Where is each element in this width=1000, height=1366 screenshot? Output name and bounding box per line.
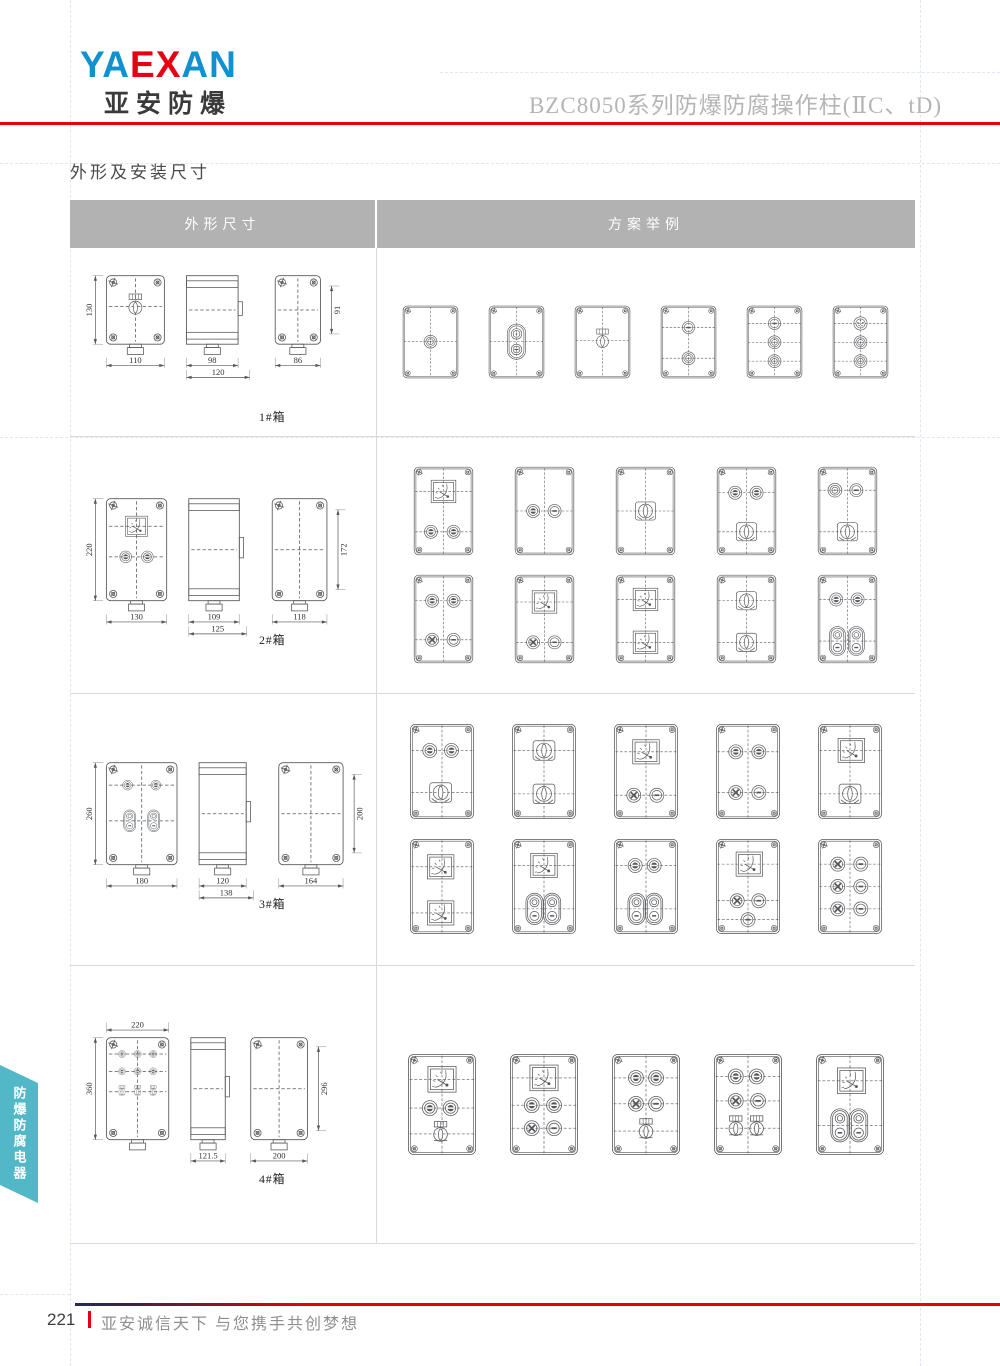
screw-icon [251, 1038, 264, 1051]
screw-icon [567, 842, 573, 848]
scheme-box [406, 1052, 478, 1157]
xlamp-glyph [831, 902, 845, 916]
screw-icon [568, 1057, 574, 1063]
box-size-label: 2#箱 [259, 633, 285, 647]
scheme-box [408, 722, 476, 821]
crop-mark [920, 0, 921, 1366]
screw-icon [568, 1145, 574, 1151]
lamp-glyph [750, 1093, 765, 1108]
lamp-glyph [648, 1096, 663, 1111]
screw-icon [567, 727, 573, 733]
screw-icon [566, 655, 571, 660]
screw-icon [333, 766, 340, 773]
dimension-drawing: 1802601201381642003#箱 [72, 744, 372, 914]
schemes-cell [376, 965, 915, 1243]
screw-icon [667, 577, 672, 582]
scheme-example-row [401, 304, 890, 380]
lamp-glyph [854, 879, 868, 893]
svg-text:86: 86 [294, 355, 303, 365]
schemes-cell [376, 436, 915, 693]
column-header-schemes: 方案举例 [376, 200, 915, 248]
scheme-box [659, 304, 718, 380]
btn-glyph [118, 1068, 125, 1075]
btn-glyph [423, 743, 437, 757]
screw-icon [566, 577, 571, 582]
screw-icon [167, 766, 174, 773]
svg-text:220: 220 [131, 1020, 144, 1030]
screw-icon [670, 1057, 676, 1063]
scheme-box [814, 1052, 886, 1157]
screw-icon [465, 469, 470, 474]
scheme-box [614, 465, 677, 557]
keyknob-glyph [597, 329, 609, 347]
screw-icon [869, 577, 874, 582]
scheme-box [401, 304, 460, 380]
svg-text:360: 360 [84, 1082, 94, 1095]
screw-icon [465, 547, 470, 552]
btn-glyph [447, 525, 460, 538]
knob-glyph [429, 783, 451, 802]
screw-icon [667, 655, 672, 660]
screw-icon [750, 371, 755, 376]
screw-icon [669, 727, 675, 733]
btn-glyph [647, 858, 661, 872]
screw-icon [881, 308, 886, 313]
knob-glyph [839, 784, 861, 803]
xlamp-glyph [426, 633, 439, 646]
lamp-glyph [546, 1120, 561, 1135]
svg-text:172: 172 [338, 543, 348, 556]
dimension-drawing: 1101309812086911#箱 [72, 257, 372, 427]
screw-icon [154, 334, 161, 341]
screw-icon [278, 334, 285, 341]
svg-text:98: 98 [208, 355, 217, 365]
lamp-glyph [548, 504, 561, 517]
footer-separator [88, 1311, 91, 1328]
screw-icon [869, 547, 874, 552]
screw-icon [717, 1145, 723, 1151]
screw-icon [417, 547, 422, 552]
screw-icon [275, 590, 282, 597]
mushroom-glyph [828, 483, 842, 497]
table-row: 220360121.52002964#箱 [70, 965, 915, 1243]
screw-icon [310, 279, 317, 286]
crop-mark [440, 72, 1000, 73]
dimensions-cell: 1101309812086911#箱 [70, 248, 376, 436]
lamp-glyph [752, 894, 766, 908]
xlamp-glyph [728, 1093, 743, 1108]
screw-icon [282, 854, 289, 861]
btn-glyph [150, 1068, 157, 1075]
scheme-box [412, 465, 475, 557]
screw-icon [110, 854, 117, 861]
knob-glyph [838, 522, 858, 540]
btn-glyph [527, 504, 540, 517]
scheme-example-row [412, 465, 879, 557]
screw-icon [768, 547, 773, 552]
screw-icon [836, 371, 841, 376]
btn-glyph [729, 745, 743, 759]
keyknob-glyph [129, 294, 142, 314]
screw-icon [720, 655, 725, 660]
mushroom-glyph [854, 336, 867, 349]
screw-icon [333, 854, 340, 861]
screw-icon [821, 547, 826, 552]
btn-glyph [729, 486, 742, 499]
table-row: 1802601201381642003#箱 [70, 693, 915, 965]
screw-icon [417, 655, 422, 660]
btn-glyph [447, 594, 460, 607]
svg-text:120: 120 [212, 367, 225, 377]
table-header: 外形尺寸 方案举例 [70, 200, 915, 248]
lamp-glyph [683, 321, 695, 333]
btn-glyph [524, 1097, 539, 1112]
side-tab-label: 防爆防腐电器 [10, 1086, 29, 1182]
screw-icon [156, 501, 163, 508]
lamp-glyph [854, 857, 868, 871]
scheme-box [513, 465, 576, 557]
screw-icon [566, 469, 571, 474]
screw-icon [772, 1057, 778, 1063]
crop-mark [0, 1294, 70, 1295]
hswitch-glyph [134, 1086, 141, 1095]
screw-icon [771, 727, 777, 733]
lamp-glyph [752, 786, 766, 800]
btn-glyph [134, 1068, 141, 1075]
xlamp-glyph [730, 894, 744, 908]
section-title: 外形及安装尺寸 [70, 158, 210, 183]
screw-icon [465, 655, 470, 660]
dimensions-cell: 1802601201381642003#箱 [70, 693, 376, 965]
screw-icon [670, 1145, 676, 1151]
screw-icon [107, 276, 120, 289]
hswitch-glyph [729, 1115, 743, 1135]
screw-icon [669, 810, 675, 816]
svg-text:200: 200 [273, 1151, 286, 1161]
scheme-box [714, 837, 782, 936]
screw-icon [537, 308, 542, 313]
btn-glyph [120, 550, 132, 562]
lamp-glyph [548, 635, 561, 648]
hswitch-glyph [434, 1121, 448, 1141]
screw-icon [664, 371, 669, 376]
screw-icon [667, 547, 672, 552]
screw-icon [578, 371, 583, 376]
scheme-box [816, 837, 884, 936]
screw-icon [317, 501, 324, 508]
xlamp-glyph [831, 879, 845, 893]
svg-text:110: 110 [129, 355, 141, 365]
screw-icon [272, 498, 285, 511]
document-title: BZC8050系列防爆防腐操作柱(ⅡC、tD) [529, 86, 942, 120]
knob-glyph [533, 784, 555, 803]
xlamp-glyph [524, 1120, 539, 1135]
side-category-tab: 防爆防腐电器 [0, 1065, 38, 1203]
header-rule [0, 122, 1000, 125]
scheme-box [715, 573, 778, 665]
svg-text:109: 109 [208, 611, 221, 621]
screw-icon [466, 1057, 472, 1063]
btn-glyph [648, 1070, 663, 1085]
page-number: 221 [47, 1310, 75, 1330]
screw-icon [465, 577, 470, 582]
scheme-example-row [408, 837, 884, 936]
svg-text:130: 130 [130, 611, 143, 621]
btn-glyph [749, 1069, 764, 1084]
spec-table: 外形尺寸 方案举例 1101309812086911#箱130220109125… [70, 200, 915, 1244]
xlamp-glyph [729, 786, 743, 800]
screw-icon [515, 810, 521, 816]
screw-icon [873, 810, 879, 816]
screw-icon [873, 925, 879, 931]
scheme-box [745, 304, 804, 380]
screw-icon [771, 842, 777, 848]
btn-glyph [628, 1070, 643, 1085]
footer-rule [75, 1303, 1000, 1306]
screw-icon [771, 925, 777, 931]
btn-glyph [444, 743, 458, 757]
mushroom-glyph [424, 335, 437, 348]
knob-glyph [737, 522, 757, 540]
screw-icon [451, 371, 456, 376]
screw-icon [623, 371, 628, 376]
screw-icon [107, 763, 120, 776]
screw-icon [158, 1129, 165, 1136]
table-row: 1302201091251181722#箱 [70, 436, 915, 693]
box-size-label: 1#箱 [259, 410, 285, 424]
screw-icon [465, 842, 471, 848]
screw-icon [451, 308, 456, 313]
svg-text:91: 91 [332, 305, 342, 314]
scheme-example-row [406, 1052, 886, 1157]
screw-icon [110, 1129, 117, 1136]
mushroom-glyph [682, 352, 695, 365]
screw-icon [771, 810, 777, 816]
btn-glyph [151, 780, 161, 790]
scheme-box [712, 1052, 784, 1157]
btn-glyph [422, 1100, 437, 1115]
catalog-page: YAEXAN 亚安防爆 BZC8050系列防爆防腐操作柱(ⅡC、tD) 外形及安… [0, 0, 1000, 1366]
screw-icon [537, 371, 542, 376]
brand-subtitle: 亚安防爆 [104, 84, 232, 120]
screw-icon [465, 810, 471, 816]
table-row: 1101309812086911#箱 [70, 248, 915, 436]
screw-icon [768, 469, 773, 474]
btn-glyph [425, 525, 438, 538]
screw-icon [873, 842, 879, 848]
screw-icon [492, 371, 497, 376]
svg-text:260: 260 [84, 807, 94, 820]
box-size-label: 3#箱 [259, 897, 285, 911]
lamp-glyph [741, 913, 755, 927]
screw-icon [317, 590, 324, 597]
screw-icon [465, 727, 471, 733]
screw-icon [669, 842, 675, 848]
scheme-box [510, 722, 578, 821]
scheme-box [816, 465, 879, 557]
screw-icon [411, 1145, 417, 1151]
scheme-box [612, 837, 680, 936]
screw-icon [466, 1145, 472, 1151]
scheme-box [612, 722, 680, 821]
screw-icon [709, 308, 714, 313]
screw-icon [167, 854, 174, 861]
screw-icon [795, 308, 800, 313]
btn-glyph [123, 780, 133, 790]
screw-icon [406, 371, 411, 376]
table-body: 1101309812086911#箱1302201091251181722#箱1… [70, 248, 915, 1243]
svg-text:220: 220 [84, 543, 94, 556]
screw-icon [821, 810, 827, 816]
scheme-box [408, 837, 476, 936]
svg-text:138: 138 [220, 887, 233, 897]
logo-part: AN [181, 44, 236, 85]
svg-text:121.5: 121.5 [198, 1151, 217, 1161]
screw-icon [158, 1041, 165, 1048]
screw-icon [874, 1145, 880, 1151]
hswitch-glyph [150, 1086, 157, 1095]
lamp-glyph [850, 483, 863, 496]
hswitch-glyph [750, 1115, 764, 1135]
scheme-box [412, 573, 475, 665]
mushroom-glyph [854, 354, 867, 367]
scheme-box [573, 304, 632, 380]
dimension-drawing: 1302201091251181722#箱 [72, 480, 372, 650]
dimensions-cell: 220360121.52002964#箱 [70, 965, 376, 1243]
screw-icon [869, 655, 874, 660]
schemes-cell [376, 693, 915, 965]
scheme-box [508, 1052, 580, 1157]
screw-icon [709, 371, 714, 376]
btn-glyph [851, 592, 864, 605]
screw-icon [615, 1145, 621, 1151]
svg-text:296: 296 [319, 1082, 329, 1095]
screw-icon [567, 925, 573, 931]
btn-glyph [150, 1050, 157, 1057]
screw-icon [513, 1145, 519, 1151]
screw-icon [869, 469, 874, 474]
screw-icon [275, 276, 288, 289]
btn-glyph [628, 858, 642, 872]
screw-icon [156, 590, 163, 597]
screw-icon [465, 925, 471, 931]
btn-glyph [750, 486, 763, 499]
screw-icon [819, 1145, 825, 1151]
xlamp-glyph [628, 1096, 643, 1111]
hswitch-glyph [639, 1118, 653, 1138]
svg-text:130: 130 [84, 303, 94, 316]
screw-icon [821, 925, 827, 931]
scheme-box [816, 573, 879, 665]
screw-icon [881, 371, 886, 376]
logo-part: YA [80, 44, 130, 85]
scheme-box [487, 304, 546, 380]
scheme-box [610, 1052, 682, 1157]
column-header-dimensions: 外形尺寸 [70, 200, 376, 248]
scheme-box [831, 304, 890, 380]
btn-glyph [752, 745, 766, 759]
lamp-glyph [854, 902, 868, 916]
svg-text:200: 200 [355, 807, 365, 820]
dimensions-cell: 1302201091251181722#箱 [70, 436, 376, 693]
btn-glyph [546, 1097, 561, 1112]
screw-icon [297, 1129, 304, 1136]
btn-glyph [134, 1050, 141, 1057]
btn-glyph [830, 592, 843, 605]
screw-icon [619, 547, 624, 552]
scheme-box [513, 573, 576, 665]
scheme-box [714, 722, 782, 821]
screw-icon [768, 655, 773, 660]
svg-text:125: 125 [211, 623, 224, 633]
btn-glyph [426, 594, 439, 607]
footer-slogan: 亚安诚信天下 与您携手共创梦想 [101, 1310, 359, 1334]
btn-glyph [118, 1050, 125, 1057]
svg-text:118: 118 [293, 611, 305, 621]
screw-icon [669, 925, 675, 931]
screw-icon [515, 925, 521, 931]
screw-icon [874, 1057, 880, 1063]
lamp-glyph [447, 633, 460, 646]
btn-glyph [728, 1069, 743, 1084]
xlamp-glyph [831, 857, 845, 871]
mushroom-glyph [768, 336, 781, 349]
lamp-glyph [769, 317, 781, 329]
screw-icon [821, 655, 826, 660]
screw-icon [413, 925, 419, 931]
screw-icon [566, 547, 571, 552]
screw-icon [768, 577, 773, 582]
btn-glyph [443, 1100, 458, 1115]
screw-icon [795, 371, 800, 376]
screw-icon [110, 590, 117, 597]
scheme-example-row [408, 722, 884, 821]
svg-text:120: 120 [216, 876, 229, 886]
screw-icon [567, 810, 573, 816]
screw-icon [623, 308, 628, 313]
screw-icon [107, 1038, 120, 1051]
screw-icon [617, 810, 623, 816]
btn-glyph [142, 550, 154, 562]
svg-text:180: 180 [135, 876, 148, 886]
screw-icon [719, 810, 725, 816]
screw-icon [617, 925, 623, 931]
screw-icon [719, 925, 725, 931]
screw-icon [154, 279, 161, 286]
schemes-cell [376, 248, 915, 436]
screw-icon [720, 547, 725, 552]
screw-icon [107, 498, 120, 511]
screw-icon [873, 727, 879, 733]
screw-icon [413, 810, 419, 816]
knob-glyph [636, 501, 656, 519]
logo-part: EX [130, 44, 181, 85]
screw-icon [254, 1129, 261, 1136]
scheme-example-row [412, 573, 879, 665]
brand-logo: YAEXAN [80, 46, 237, 83]
screw-icon [772, 1145, 778, 1151]
box-size-label: 4#箱 [259, 1172, 285, 1186]
xlamp-glyph [527, 635, 540, 648]
scheme-box [816, 722, 884, 821]
svg-text:164: 164 [305, 876, 319, 886]
screw-icon [518, 655, 523, 660]
scheme-box [614, 573, 677, 665]
dimension-drawing: 220360121.52002964#箱 [72, 1019, 372, 1189]
scheme-box [715, 465, 778, 557]
hswitch-glyph [119, 1086, 126, 1095]
screw-icon [297, 1041, 304, 1048]
